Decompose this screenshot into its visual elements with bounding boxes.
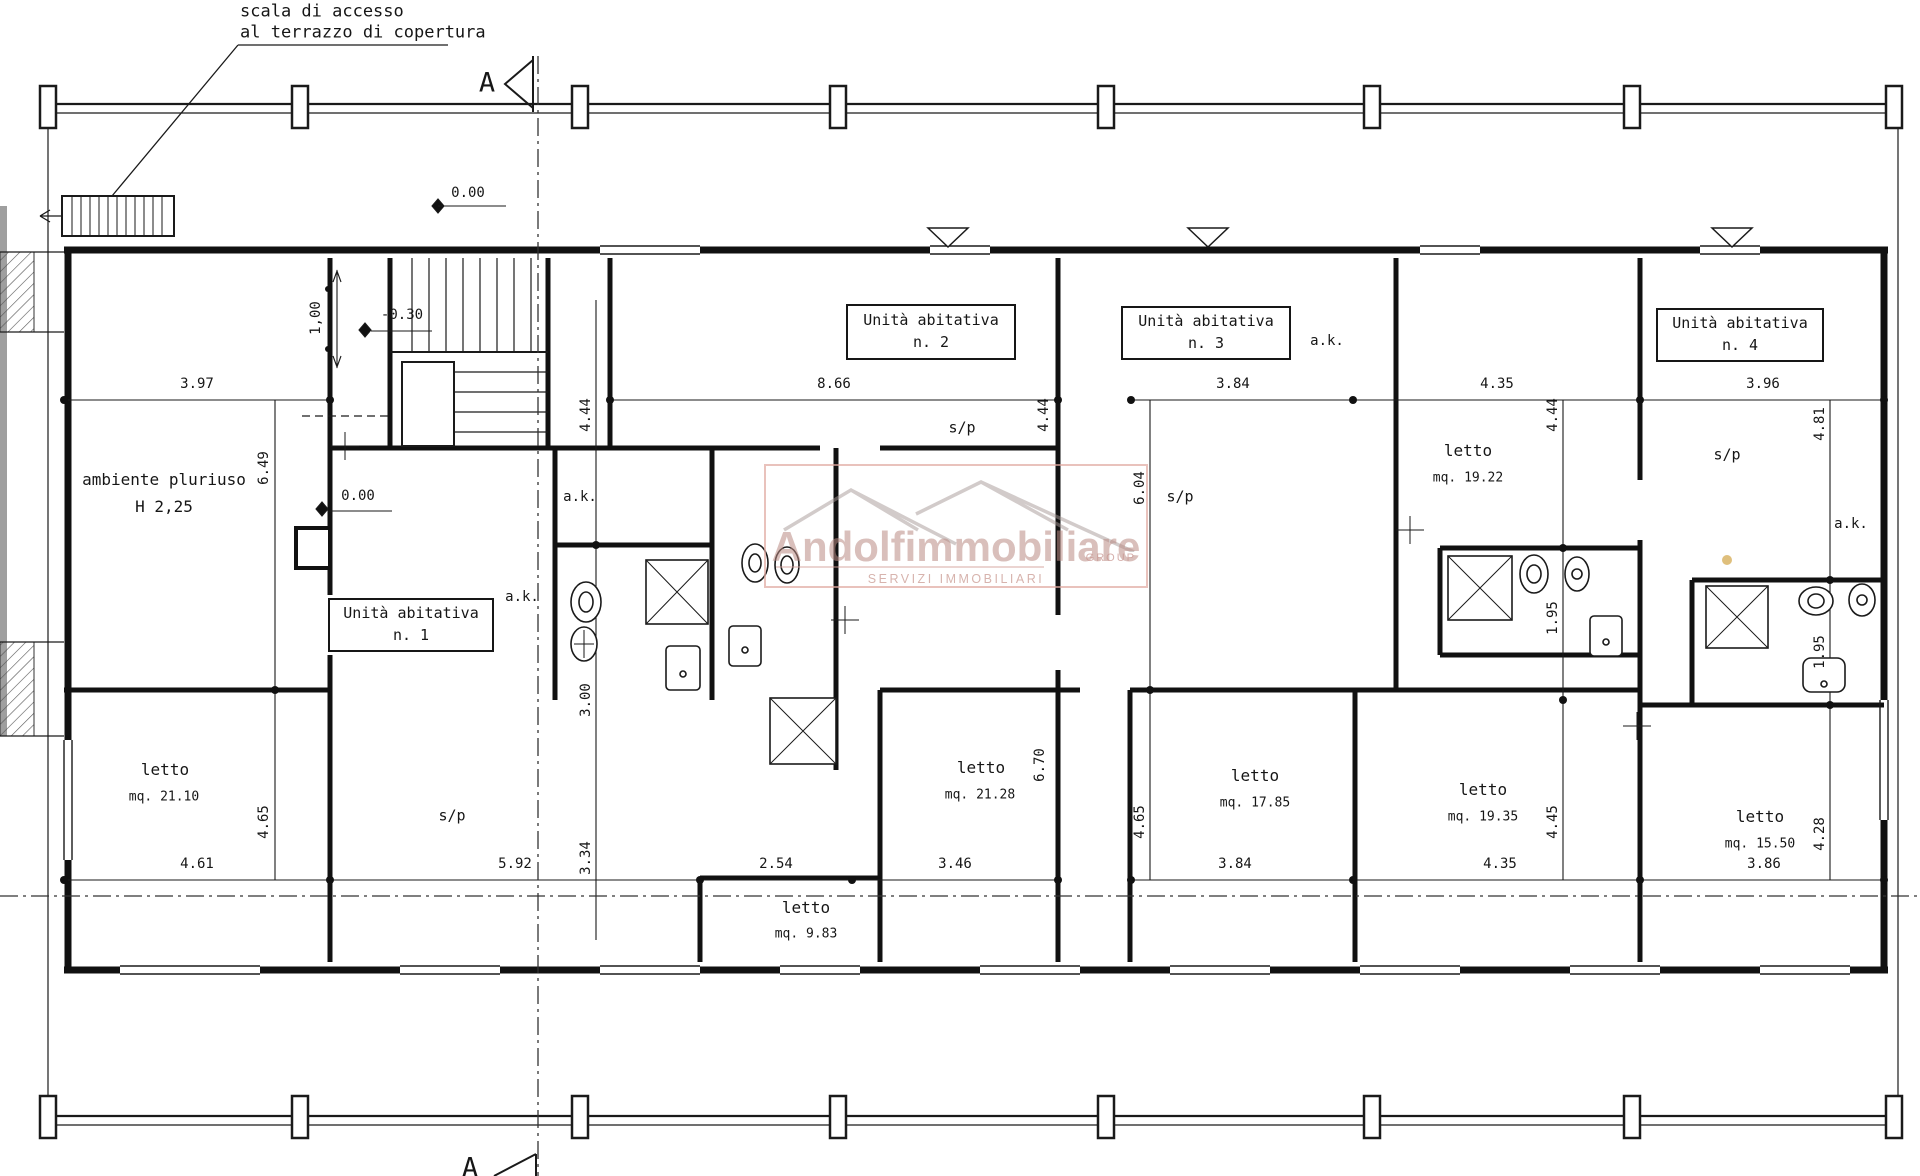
stair-width-label: 1,00 <box>309 301 323 335</box>
section-label-top: A <box>479 70 495 97</box>
unit-4-number: n. 4 <box>1722 335 1758 357</box>
room-letto2128-name: letto <box>957 760 1005 776</box>
shower-symbol-unit2 <box>770 698 836 764</box>
floor-plan-sheet: scala di accesso al terrazzo di copertur… <box>0 0 1920 1176</box>
dim-top-2: 8.66 <box>817 377 851 391</box>
dim-top-3: 3.84 <box>1216 377 1250 391</box>
vdim-u4-right-lower: 4.28 <box>1813 817 1827 851</box>
access-note-line1: scala di accesso <box>240 4 404 21</box>
toilet-symbol-unit3 <box>1520 555 1548 593</box>
dim-top-1: 3.97 <box>180 377 214 391</box>
shower-symbol-unit4 <box>1706 586 1768 648</box>
dim-bottom-7: 3.86 <box>1747 857 1781 871</box>
unit-box-2: Unità abitativa n. 2 <box>846 304 1016 360</box>
access-note-line2: al terrazzo di copertura <box>240 25 486 42</box>
room-letto2110-name: letto <box>141 762 189 778</box>
shower-symbol-unit3 <box>1448 556 1512 620</box>
dim-top-5: 3.96 <box>1746 377 1780 391</box>
elevation-landing: -0.30 <box>381 308 423 322</box>
vdim-u4-bath: 1.95 <box>1813 635 1827 669</box>
room-letto1935-name: letto <box>1459 782 1507 798</box>
room-letto1550-area: mq. 15.50 <box>1725 838 1795 851</box>
fixtures-unit4 <box>1706 584 1875 692</box>
dim-bottom-3: 2.54 <box>759 857 793 871</box>
vdim-u1-mid: 3.00 <box>579 683 593 717</box>
vdim-u3-right: 4.44 <box>1546 398 1560 432</box>
ak-label-unit3: a.k. <box>1310 334 1344 348</box>
sp-label-unit4: s/p <box>1713 448 1740 463</box>
watermark-group: GROUP <box>1086 552 1136 564</box>
vdim-u1-lower: 3.34 <box>579 841 593 875</box>
plan-linework <box>0 0 1920 1176</box>
vdim-u3-bath: 1.95 <box>1546 601 1560 635</box>
room-letto1922-name: letto <box>1444 443 1492 459</box>
bidet-symbol-unit4 <box>1849 584 1875 616</box>
dim-bottom-6: 4.35 <box>1483 857 1517 871</box>
vdim-u3-right-lower: 4.45 <box>1546 805 1560 839</box>
section-arrow-bottom <box>494 1154 536 1176</box>
room-letto2128-area: mq. 21.28 <box>945 789 1015 802</box>
elevation-zero-stair: 0.00 <box>341 489 375 503</box>
shower-symbol-unit1 <box>646 560 708 624</box>
room-letto983-name: letto <box>782 900 830 916</box>
sp-label-unit3: s/p <box>1166 490 1193 505</box>
watermark-tagline: SERVIZI IMMOBILIARI <box>868 572 1044 586</box>
sink-symbol-unit3 <box>1590 616 1622 656</box>
sp-label-unit2: s/p <box>948 421 975 436</box>
roof-access-stair <box>40 196 174 236</box>
unit-2-label: Unità abitativa <box>863 310 998 332</box>
vdim-left-upper: 6.49 <box>257 451 271 485</box>
unit-box-1: Unità abitativa n. 1 <box>328 598 494 652</box>
ak-label-unit4: a.k. <box>1834 517 1868 531</box>
unit-2-number: n. 2 <box>913 332 949 354</box>
staircase <box>302 258 548 446</box>
unit-4-label: Unità abitativa <box>1672 313 1807 335</box>
scan-dot <box>1722 555 1732 565</box>
section-lines <box>0 56 1920 1176</box>
unit-box-4: Unità abitativa n. 4 <box>1656 308 1824 362</box>
balcony-door-markers <box>928 228 1752 247</box>
note-leader-line <box>112 45 448 196</box>
room-letto983-area: mq. 9.83 <box>775 928 838 941</box>
dim-bottom-2: 5.92 <box>498 857 532 871</box>
vdim-u2-right: 4.44 <box>1037 398 1051 432</box>
room-letto1785-name: letto <box>1231 768 1279 784</box>
unit-1-number: n. 1 <box>393 625 429 647</box>
dim-bottom-4: 3.46 <box>938 857 972 871</box>
agency-watermark: Andolfimmobiliare GROUP SERVIZI IMMOBILI… <box>764 464 1148 588</box>
unit-1-label: Unità abitativa <box>343 603 478 625</box>
room-pluriuso-name: ambiente pluriuso <box>82 472 246 488</box>
fixtures-unit3 <box>1448 555 1622 656</box>
terrace-pillars <box>40 86 1902 1138</box>
sink-symbol-unit2 <box>729 626 761 666</box>
ak-label-unit2: a.k. <box>563 490 597 504</box>
sp-label-unit1: s/p <box>438 809 465 824</box>
room-letto1922-area: mq. 19.22 <box>1433 472 1503 485</box>
toilet-symbol-unit4 <box>1799 587 1833 615</box>
sink-symbol-unit1 <box>666 646 700 690</box>
bidet-symbol-unit3 <box>1565 557 1589 591</box>
room-letto1785-area: mq. 17.85 <box>1220 797 1290 810</box>
vdim-left-lower: 4.65 <box>257 805 271 839</box>
room-letto1550-name: letto <box>1736 809 1784 825</box>
room-letto2110-area: mq. 21.10 <box>129 791 199 804</box>
fixtures-unit1 <box>571 560 708 690</box>
room-letto1935-area: mq. 19.35 <box>1448 811 1518 824</box>
vdim-u1-upper: 4.44 <box>579 398 593 432</box>
ak-label-unit1: a.k. <box>505 590 539 604</box>
section-label-bottom: A <box>462 1155 478 1176</box>
toilet-symbol-unit1 <box>571 582 601 622</box>
elevation-zero-top: 0.00 <box>451 186 485 200</box>
dim-bottom-1: 4.61 <box>180 857 214 871</box>
vdim-u2-lower: 6.70 <box>1033 748 1047 782</box>
room-pluriuso-height: H 2,25 <box>135 499 193 515</box>
unit-box-3: Unità abitativa n. 3 <box>1121 306 1291 360</box>
unit-3-number: n. 3 <box>1188 333 1224 355</box>
dim-top-4: 4.35 <box>1480 377 1514 391</box>
bidet-symbol-unit1 <box>571 627 597 661</box>
vdim-u3-lower: 4.65 <box>1133 805 1147 839</box>
unit-3-label: Unità abitativa <box>1138 311 1273 333</box>
dim-bottom-5: 3.84 <box>1218 857 1252 871</box>
vdim-u4-right-upper: 4.81 <box>1813 407 1827 441</box>
stair-width-dim <box>325 270 341 368</box>
